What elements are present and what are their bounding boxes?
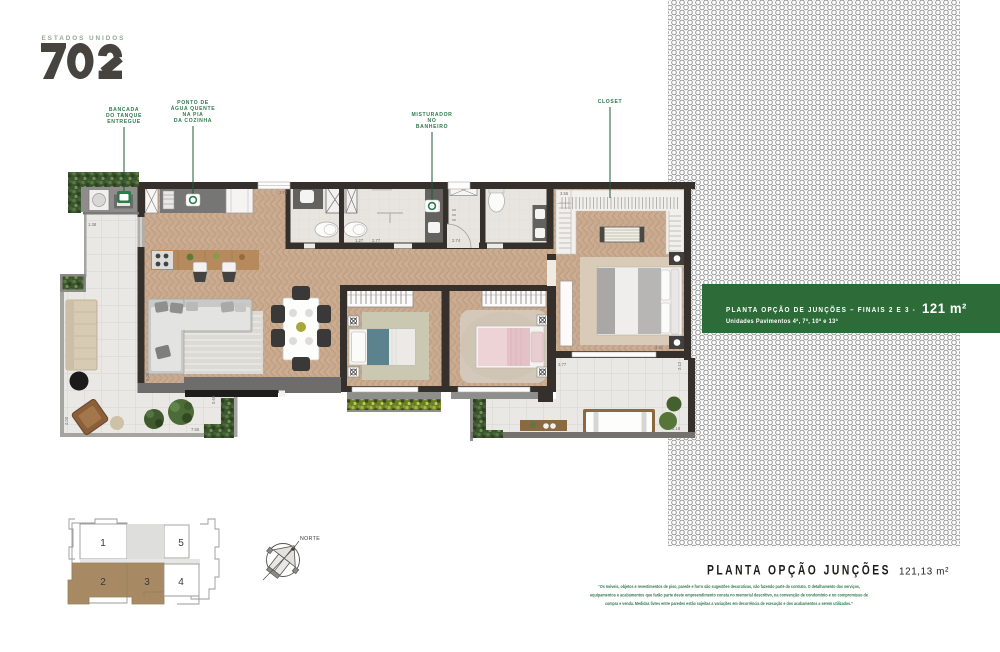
svg-text:3.61: 3.61 xyxy=(655,345,664,350)
svg-text:equipamentos e acabamentos que: equipamentos e acabamentos que farão par… xyxy=(590,593,868,598)
svg-text:compra e venda. Medidas livres: compra e venda. Medidas livres entre par… xyxy=(605,601,853,606)
svg-text:CLOSET: CLOSET xyxy=(598,99,623,105)
svg-text:5.00: 5.00 xyxy=(145,372,150,381)
svg-text:3.77: 3.77 xyxy=(558,362,567,367)
svg-text:0.69: 0.69 xyxy=(211,395,216,404)
svg-text:“Os móveis, objetos e revestim: “Os móveis, objetos e revestimentos de p… xyxy=(598,584,860,589)
svg-text:PLANTA OPÇÃO JUNÇÕES: PLANTA OPÇÃO JUNÇÕES xyxy=(707,561,891,578)
svg-text:7.55: 7.55 xyxy=(191,427,200,432)
svg-text:BANHEIRO: BANHEIRO xyxy=(416,124,448,130)
svg-text:4: 4 xyxy=(178,577,184,588)
svg-text:ESTADOS UNIDOS: ESTADOS UNIDOS xyxy=(42,35,126,42)
svg-text:121,13 m²: 121,13 m² xyxy=(899,566,949,578)
svg-text:2.74: 2.74 xyxy=(452,238,461,243)
svg-text:PLANTA OPÇÃO DE JUNÇÕES – FINA: PLANTA OPÇÃO DE JUNÇÕES – FINAIS 2 E 3 - xyxy=(726,305,916,314)
svg-text:ÁGUA QUENTE: ÁGUA QUENTE xyxy=(171,105,216,112)
svg-text:2.77: 2.77 xyxy=(372,238,381,243)
svg-text:1.27: 1.27 xyxy=(355,238,364,243)
svg-text:3.55: 3.55 xyxy=(560,191,569,196)
svg-text:121 m²: 121 m² xyxy=(922,301,967,316)
svg-text:5: 5 xyxy=(178,538,184,549)
svg-text:3.03: 3.03 xyxy=(81,276,86,285)
svg-text:ENTREGUE: ENTREGUE xyxy=(107,119,141,125)
svg-text:3.70: 3.70 xyxy=(279,190,288,195)
svg-text:NORTE: NORTE xyxy=(300,536,320,542)
svg-text:2.12: 2.12 xyxy=(677,361,682,370)
svg-text:Unidades Pavimentos 4ª, 7ª, 10: Unidades Pavimentos 4ª, 7ª, 10ª e 13ª xyxy=(726,318,838,325)
svg-text:1.38: 1.38 xyxy=(88,222,97,227)
svg-text:2: 2 xyxy=(100,577,106,588)
svg-text:4.00: 4.00 xyxy=(64,416,69,425)
svg-text:1: 1 xyxy=(100,538,106,549)
svg-text:5.18: 5.18 xyxy=(672,426,681,431)
svg-text:DA COZINHA: DA COZINHA xyxy=(174,118,212,124)
svg-text:3: 3 xyxy=(144,577,150,588)
